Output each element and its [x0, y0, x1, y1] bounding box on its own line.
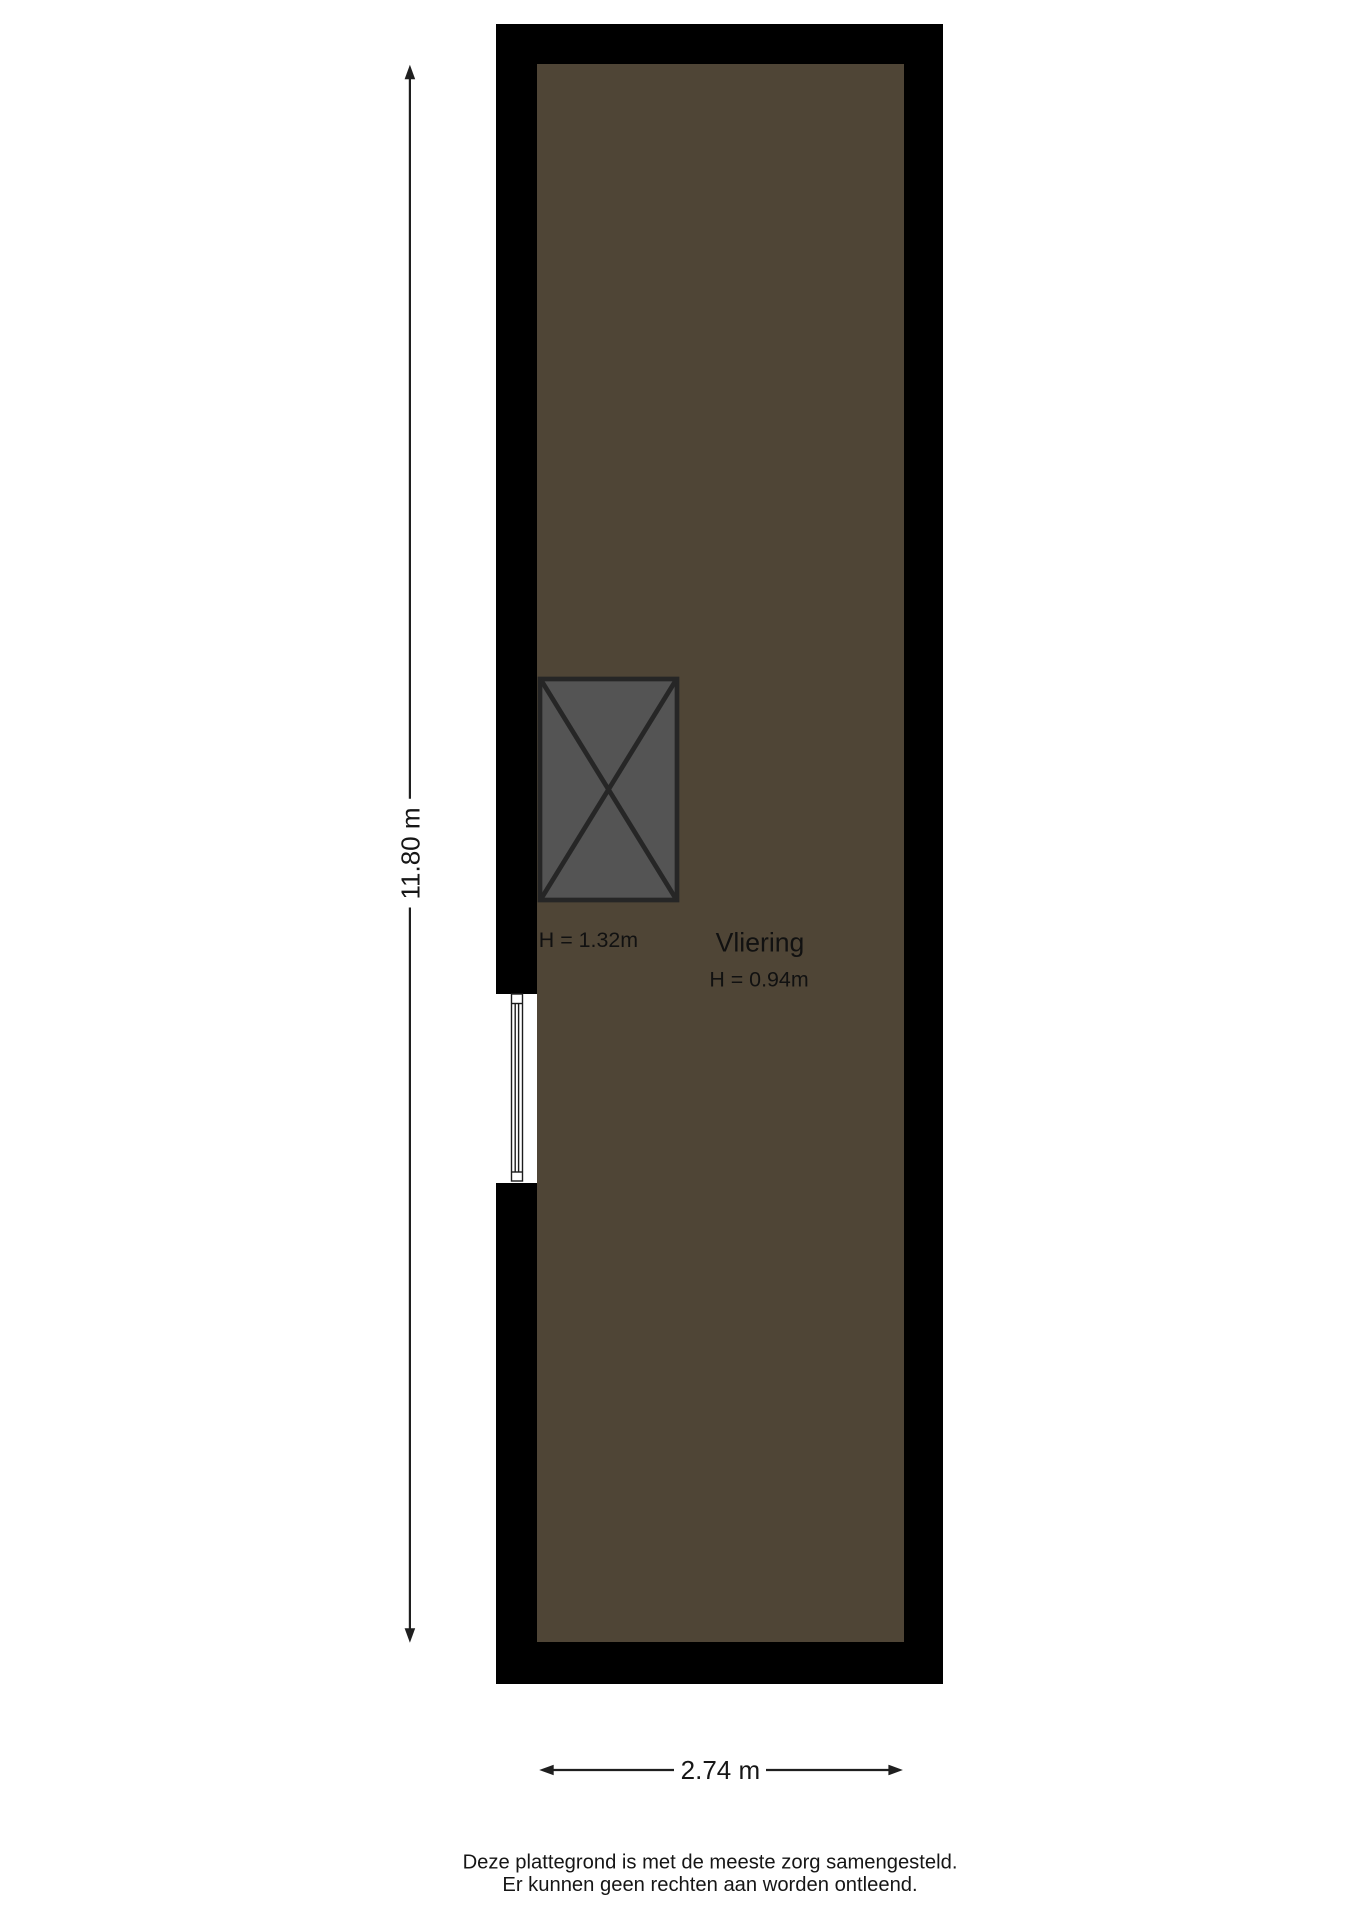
svg-text:H = 1.32m: H = 1.32m	[539, 928, 638, 952]
svg-text:11.80 m: 11.80 m	[396, 807, 426, 899]
svg-text:Er kunnen geen rechten aan wor: Er kunnen geen rechten aan worden ontlee…	[502, 1874, 917, 1896]
svg-text:Deze plattegrond is met de mee: Deze plattegrond is met de meeste zorg s…	[463, 1852, 958, 1874]
svg-text:Vliering: Vliering	[716, 928, 805, 958]
svg-text:2.74 m: 2.74 m	[681, 1755, 761, 1785]
svg-text:H = 0.94m: H = 0.94m	[709, 968, 808, 992]
